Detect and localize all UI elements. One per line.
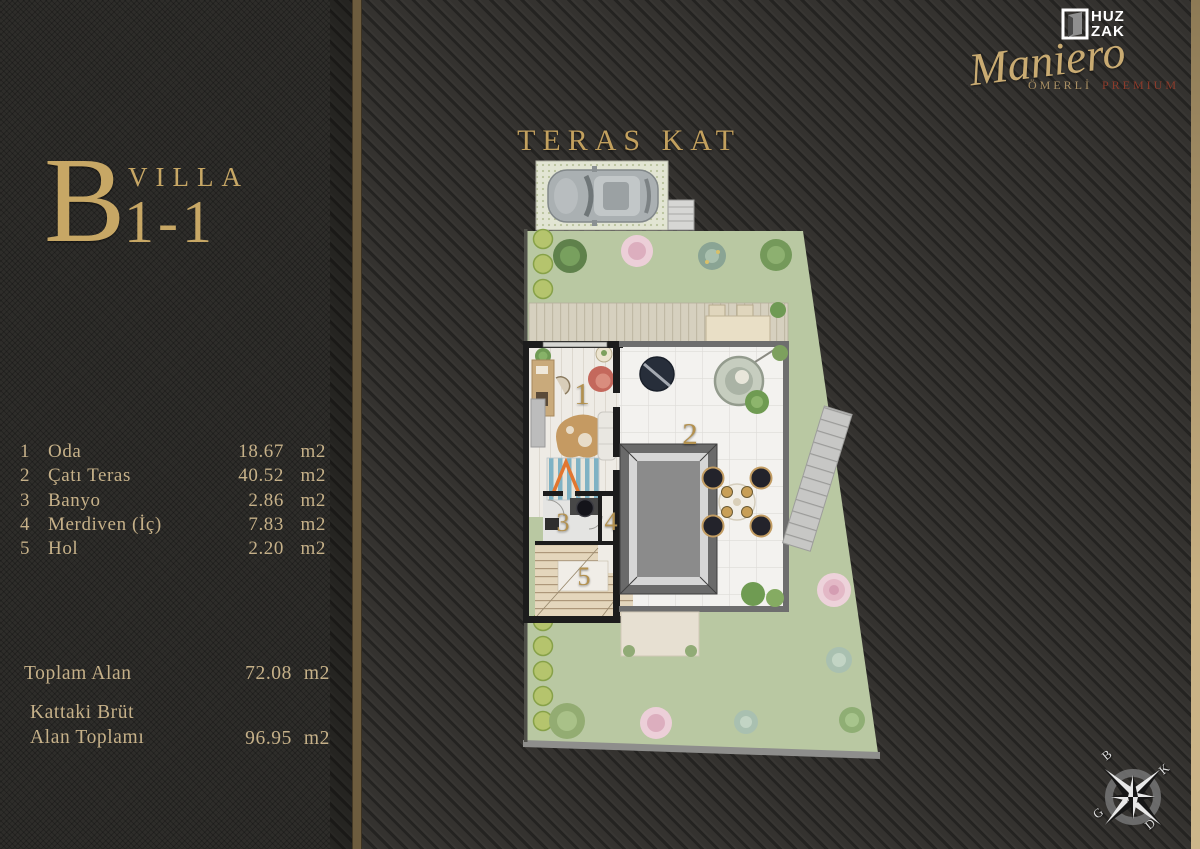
rear-patio bbox=[621, 612, 699, 657]
building bbox=[523, 341, 789, 623]
carport bbox=[536, 161, 668, 230]
roof-skylight bbox=[620, 444, 717, 594]
entry-steps bbox=[668, 200, 694, 230]
plan-label-room2: 2 bbox=[682, 416, 698, 452]
floor-plan bbox=[0, 0, 1200, 849]
plan-label-room4: 4 bbox=[605, 507, 618, 537]
compass-icon bbox=[1105, 769, 1161, 825]
plan-label-room3: 3 bbox=[557, 508, 570, 538]
plan-label-room1: 1 bbox=[574, 376, 590, 412]
plan-label-room5: 5 bbox=[578, 562, 591, 592]
deck-plant bbox=[770, 302, 786, 318]
car-icon bbox=[548, 166, 658, 226]
